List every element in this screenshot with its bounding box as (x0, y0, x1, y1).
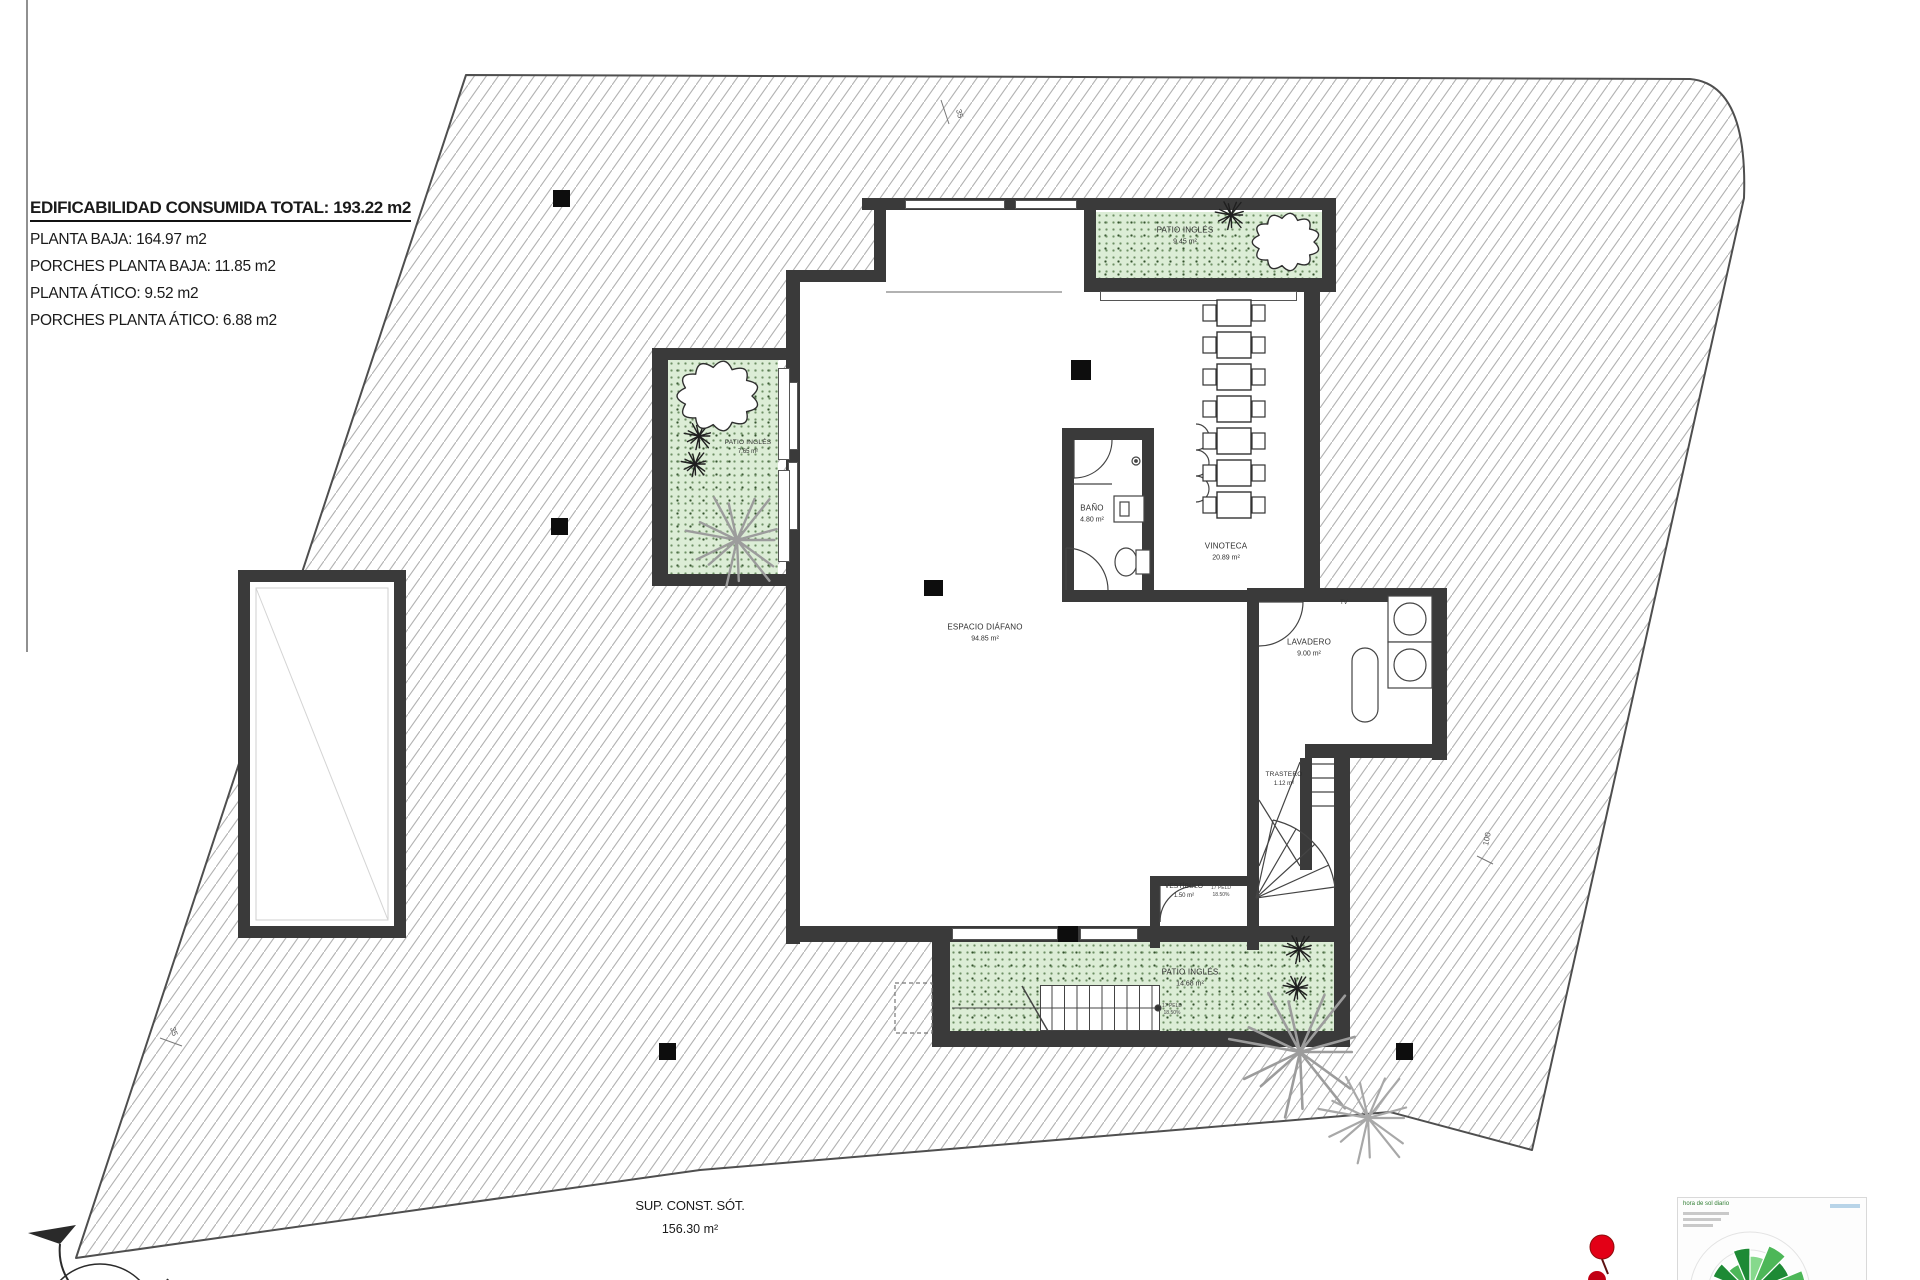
wall-segment (1334, 744, 1350, 1047)
sun-card-title: hora de sol diario (1683, 1201, 1729, 1207)
info-line: PLANTA BAJA: 164.97 m2 (30, 231, 411, 249)
column-pillar (553, 190, 570, 207)
room-label-patio-ingles-bottom: PATIO INGLÉS 14.68 m² (1162, 967, 1219, 988)
room-label-espacio-diafano: ESPACIO DIÁFANO 94.85 m² (947, 622, 1022, 643)
wall-segment (1304, 290, 1320, 602)
room-label-trastero: TRASTERO 1.12 m² (1266, 771, 1303, 789)
window (905, 200, 1005, 209)
site-plan-canvas: 35 35 100 PATIO INGLÉS 9.45 m² PATIO ING… (0, 0, 1920, 1280)
stair-note: 17 PELD 18.50% (1211, 885, 1231, 899)
wall-segment (652, 574, 798, 586)
card-text-line (1683, 1212, 1729, 1215)
wall-segment (1432, 588, 1447, 760)
wall-segment (1255, 588, 1447, 602)
wall-segment (786, 270, 886, 282)
wall-segment (652, 348, 668, 586)
column-pillar (1071, 360, 1091, 380)
window (952, 928, 1058, 940)
card-text-line (1683, 1224, 1713, 1227)
column-pillar (1396, 1043, 1413, 1060)
wall-segment (932, 1031, 1350, 1047)
sun-path-chart (1678, 1198, 1866, 1280)
card-brand-mark (1830, 1204, 1860, 1208)
wall-segment (1084, 278, 1336, 292)
wall-segment (1062, 428, 1154, 440)
info-line: PLANTA ÁTICO: 9.52 m2 (30, 285, 411, 303)
window (778, 470, 790, 562)
room-label-vestibulo: VESTÍBULO 1.50 m² (1165, 883, 1203, 901)
tv-label: TV (1340, 600, 1348, 606)
summary-value: 156.30 m² (560, 1222, 820, 1236)
column-pillar (659, 1043, 676, 1060)
wall-segment (1142, 428, 1154, 602)
summary-label: SUP. CONST. SÓT. (560, 1198, 820, 1213)
room-label-patio-ingles-top: PATIO INGLÉS 9.45 m² (1157, 225, 1214, 246)
room-label-bano: BAÑO 4.80 m² (1080, 503, 1104, 524)
card-text-line (1683, 1218, 1721, 1221)
sun-diagram-card: hora de sol diario (1677, 1197, 1867, 1280)
exterior-stair (1040, 985, 1160, 1031)
room-floor (1259, 602, 1432, 744)
wall-segment (1247, 588, 1259, 950)
wall-segment (1062, 428, 1074, 602)
wall-segment (1305, 744, 1447, 758)
window (1080, 928, 1138, 940)
window (1100, 291, 1297, 301)
stair-note: 17 PELD 18.50% (1162, 1003, 1182, 1017)
info-line: PORCHES PLANTA ÁTICO: 6.88 m2 (30, 312, 411, 330)
edificabilidad-info-block: EDIFICABILIDAD CONSUMIDA TOTAL: 193.22 m… (30, 198, 411, 330)
wall-segment (932, 926, 950, 1046)
wall-segment (652, 348, 798, 360)
info-line: PORCHES PLANTA BAJA: 11.85 m2 (30, 258, 411, 276)
window (778, 368, 790, 460)
window (1015, 200, 1077, 209)
column-pillar (1058, 926, 1078, 942)
patio-green-area (668, 360, 778, 574)
column-pillar (551, 518, 568, 535)
basement-surface-summary: SUP. CONST. SÓT. 156.30 m² (560, 1198, 820, 1236)
room-label-vinoteca: VINOTECA 20.89 m² (1205, 541, 1248, 562)
info-title: EDIFICABILIDAD CONSUMIDA TOTAL: 193.22 m… (30, 198, 411, 222)
room-label-patio-ingles-left: PATIO INGLÉS 7.65 m² (725, 439, 772, 457)
column-pillar (924, 580, 943, 596)
room-label-lavadero: LAVADERO 9.00 m² (1287, 637, 1331, 658)
pool (238, 570, 406, 938)
